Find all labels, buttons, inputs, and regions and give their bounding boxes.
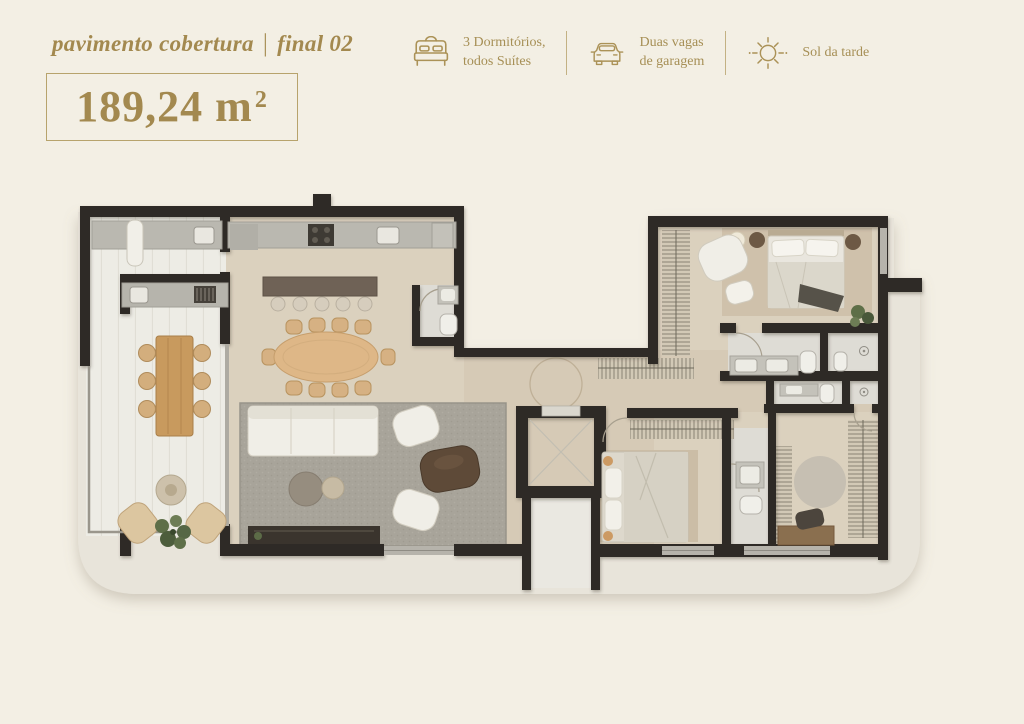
chimney-stub <box>313 194 331 206</box>
master-closet <box>662 230 690 356</box>
toilet <box>440 314 457 335</box>
gourmet-sink <box>130 287 148 303</box>
nightstand <box>845 234 861 250</box>
entry-corridor-floor <box>531 498 591 588</box>
elevator-door <box>542 406 580 416</box>
bedroom3-closet-right <box>848 420 878 538</box>
island-counter <box>263 277 377 296</box>
toilet <box>820 384 834 403</box>
pouf <box>289 472 323 506</box>
fridge <box>432 223 453 248</box>
bedroom2-closet <box>630 420 734 439</box>
side-table <box>322 477 344 499</box>
gourmet-counter <box>122 283 228 307</box>
glass-door <box>225 344 229 526</box>
service-door-leaf <box>127 220 143 266</box>
toilet <box>800 351 816 373</box>
bedroom2 <box>602 452 688 542</box>
window <box>880 228 887 274</box>
cushion <box>603 531 613 541</box>
hall-closet <box>598 358 694 379</box>
tv-console <box>248 526 380 544</box>
service-sink <box>194 227 214 244</box>
toilet <box>740 496 762 514</box>
round-rug <box>794 456 846 508</box>
toilet <box>834 352 847 371</box>
headboard <box>768 230 844 236</box>
floor-plan-illustration <box>0 0 1024 724</box>
nightstand <box>749 232 765 248</box>
bathroom2 <box>736 462 764 514</box>
cushion <box>603 456 613 466</box>
cooktop <box>308 224 334 246</box>
kitchen-sink <box>377 227 399 244</box>
terrace-table <box>156 336 193 436</box>
